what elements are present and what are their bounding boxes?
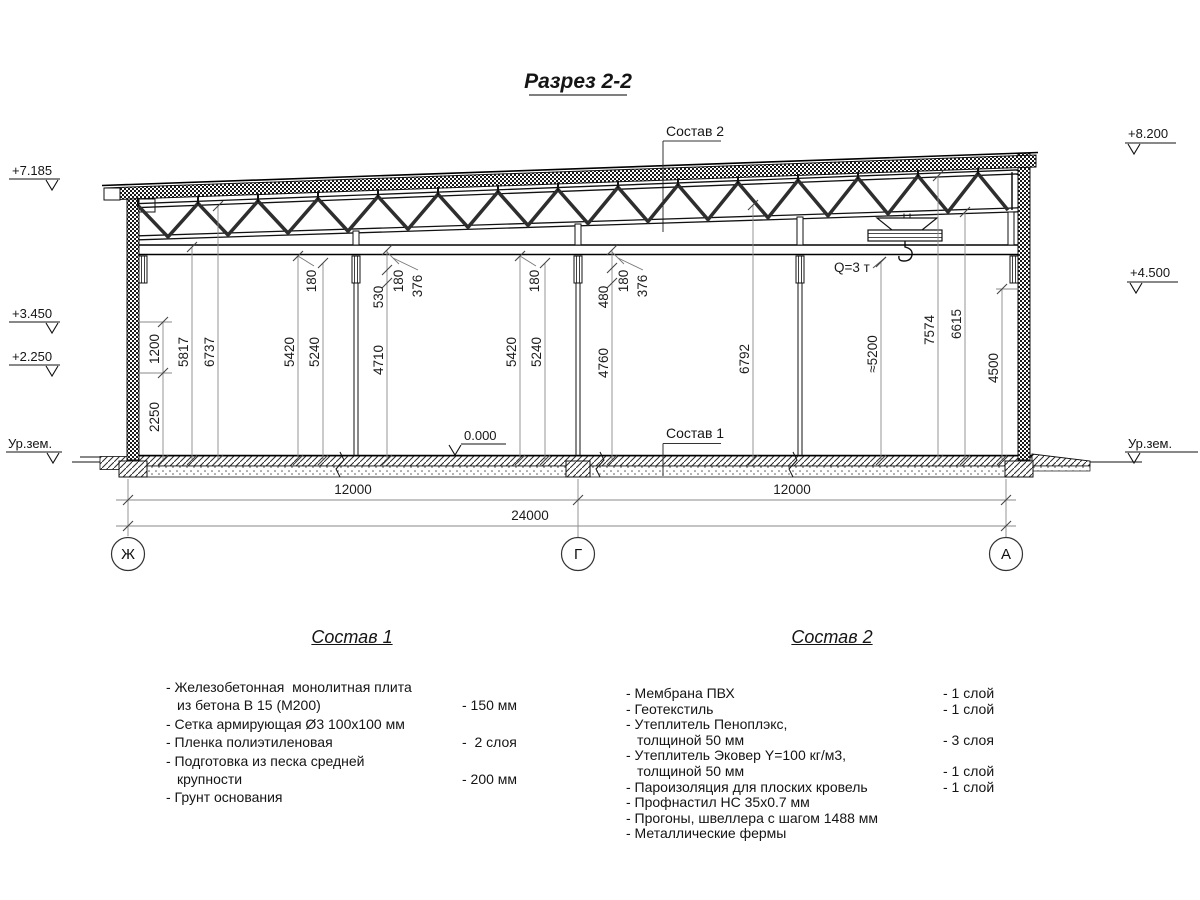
spec2-item: - Профнастил НС 35х0.7 мм: [626, 795, 1038, 811]
dim-total: 24000: [511, 508, 549, 523]
spec1-item: - Пленка полиэтиленовая- 2 слоя: [166, 733, 538, 751]
dim-label-dm180b: 180: [616, 270, 631, 293]
elevation-ground-left: Ур.зем.: [8, 436, 52, 451]
dim-span-left: 12000: [334, 482, 372, 497]
spec2-item: - Утеплитель Эковер Y=100 кг/м3,: [626, 748, 1038, 764]
dim-label-d480: 480: [596, 286, 611, 309]
roof-deck: [102, 153, 1038, 201]
elevation-8200: +8.200: [1128, 126, 1168, 141]
crane-capacity-label: Q=3 т: [834, 260, 870, 275]
axis-g: Г: [574, 546, 582, 563]
elevation-4500: +4.500: [1130, 265, 1170, 280]
dim-label-d7574: 7574: [922, 314, 937, 345]
dim-label-dl376: 376: [410, 275, 425, 298]
dim-label-d5817: 5817: [176, 337, 191, 367]
dim-label-dl180: 180: [304, 270, 319, 293]
callout-sostav2: Состав 2: [666, 123, 724, 139]
callout-sostav1: Состав 1: [666, 425, 724, 441]
dim-label-d1200: 1200: [147, 334, 162, 364]
dim-label-d4710: 4710: [371, 345, 386, 375]
elevation-ground-right: Ур.зем.: [1128, 436, 1172, 451]
dim-label-dl5420: 5420: [282, 337, 297, 367]
horizontal-dimensions: 12000 12000 24000: [116, 482, 1016, 531]
spec-sostav-2: Состав 2 - Мембрана ПВХ- 1 слой - Геотек…: [626, 627, 1038, 842]
vertical-dimensions: 1200225058176737542052405304710542052404…: [147, 171, 1007, 465]
spec-sostav-1: Состав 1 - Железобетонная монолитная пли…: [166, 627, 538, 807]
spec1-item: - Железобетонная монолитная плита: [166, 678, 538, 696]
spec2-item: - Геотекстиль- 1 слой: [626, 702, 1038, 718]
dim-label-dm5240: 5240: [529, 337, 544, 367]
dim-label-d530: 530: [371, 286, 386, 309]
dim-label-dm180: 180: [527, 270, 542, 293]
elevation-2250: +2.250: [12, 349, 52, 364]
drawing-title: Разрез 2-2: [524, 70, 632, 93]
left-wall: [127, 190, 139, 460]
dim-label-dl5240: 5240: [307, 337, 322, 367]
section-drawing: Разрез 2-2: [0, 0, 1200, 620]
right-wall: [1018, 153, 1030, 460]
dim-label-d2250: 2250: [147, 402, 162, 432]
spec1-item: - Сетка армирующая Ø3 100х100 мм: [166, 715, 538, 733]
spec1-item: - Грунт основания: [166, 788, 538, 806]
entrance-ramp: [1032, 454, 1090, 466]
dim-label-dm5420: 5420: [504, 337, 519, 367]
spec2-title: Состав 2: [626, 627, 1038, 649]
spec2-item: толщиной 50 мм- 3 слоя: [626, 733, 1038, 749]
elevation-7185: +7.185: [12, 163, 52, 178]
dim-label-dm376: 376: [635, 275, 650, 298]
spec1-title: Состав 1: [166, 627, 538, 649]
dim-label-dl180b: 180: [391, 270, 406, 293]
spec2-item: - Пароизоляция для плоских кровель- 1 сл…: [626, 780, 1038, 796]
elevation-zero: 0.000: [464, 428, 497, 443]
spec2-item: - Мембрана ПВХ- 1 слой: [626, 686, 1038, 702]
spec2-item: - Прогоны, швеллера с шагом 1488 мм: [626, 811, 1038, 827]
spec2-item: - Металлические фермы: [626, 826, 1038, 842]
dim-label-d4500: 4500: [986, 353, 1001, 383]
elevation-3450: +3.450: [12, 306, 52, 321]
dim-label-d4760: 4760: [596, 348, 611, 378]
dim-label-d6615: 6615: [949, 309, 964, 339]
spec1-item: - Подготовка из песка средней: [166, 752, 538, 770]
spec2-item: - Утеплитель Пеноплэкс,: [626, 717, 1038, 733]
grid-axes: Ж Г А: [112, 538, 1023, 571]
drawing-sheet: Разрез 2-2: [0, 0, 1200, 900]
dim-span-right: 12000: [773, 482, 811, 497]
dim-label-d6792: 6792: [737, 344, 752, 374]
axis-zh: Ж: [121, 546, 135, 563]
spec1-item: из бетона В 15 (М200)- 150 мм: [166, 696, 538, 714]
crane-hook-icon: [899, 241, 912, 261]
spec2-item: толщиной 50 мм- 1 слой: [626, 764, 1038, 780]
spec1-item: крупности- 200 мм: [166, 770, 538, 788]
dim-label-d5200: ≈5200: [865, 335, 880, 372]
steel-structure: [119, 168, 1033, 477]
dim-label-d6737: 6737: [202, 337, 217, 367]
axis-a: А: [1001, 546, 1011, 563]
